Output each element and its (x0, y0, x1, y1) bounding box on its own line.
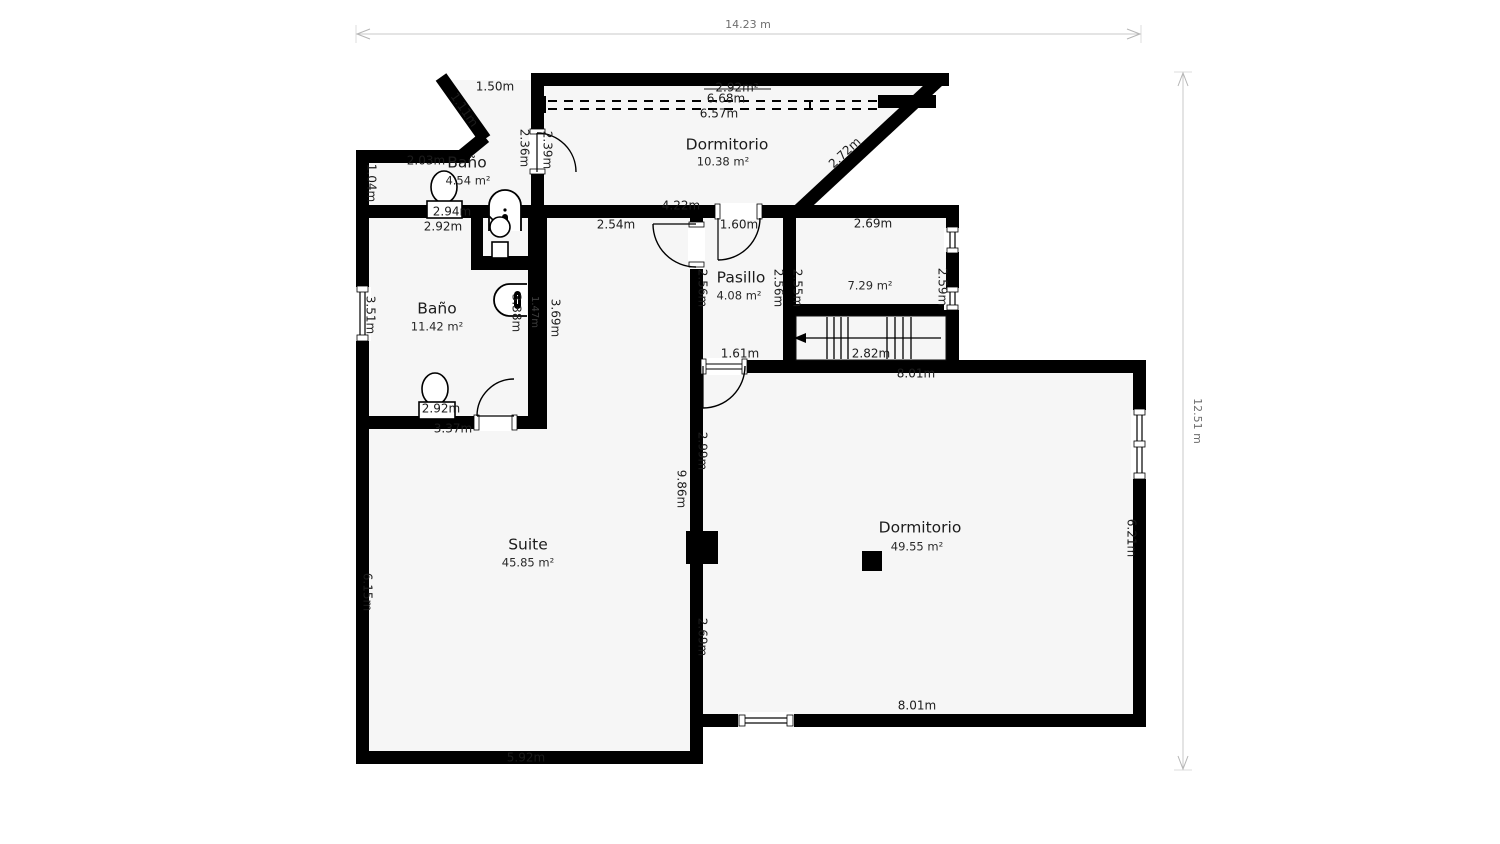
room-label-dormitorio-top: Dormitorio (686, 136, 769, 154)
measurement-label: 2.03m (407, 154, 445, 168)
measurement-label: 2.94m (433, 205, 471, 219)
measurement-label: 3.51m (364, 296, 378, 334)
dormitorio-pillar (862, 551, 882, 571)
room-label-pasillo: Pasillo (717, 269, 766, 287)
room-label-bano-main: Baño (417, 300, 456, 318)
measurement-label: 2.36m (518, 129, 532, 167)
measurement-label: 1.47m (529, 296, 540, 328)
measurement-label: 3.69m (549, 299, 563, 337)
measurement-label: 3.37m (434, 422, 472, 436)
measurement-label: 2.56m (772, 269, 786, 307)
measurement-label: 2.82m (852, 347, 890, 361)
room-area-pasillo: 4.08 m² (716, 289, 761, 303)
measurement-label: 5.92m (507, 751, 545, 765)
measurement-label: 2.59m (936, 268, 950, 306)
measurement-label: 2.69m (696, 618, 710, 656)
room-area-dormitorio-main: 49.55 m² (891, 540, 943, 554)
measurement-label: 6.57m (700, 107, 738, 121)
floor-plan: 14.23 m 12.51 m Dormitorio 10.38 m² Baño… (0, 0, 1500, 844)
room-area-suite: 45.85 m² (502, 556, 554, 570)
window-dormitorio-right (1131, 409, 1148, 479)
room-area-bano-main: 11.42 m² (411, 320, 463, 334)
room-label-suite: Suite (508, 536, 548, 554)
measurement-label: 2.55m (791, 269, 805, 307)
suite-wall-pillar (686, 531, 718, 564)
measurement-label: 1.60m (720, 218, 758, 232)
window-dormitorio-bottom (738, 712, 794, 729)
measurement-label: 2.39m (541, 131, 555, 169)
window-stairs-right-1 (944, 227, 961, 253)
measurement-label: 2.99m (696, 432, 710, 470)
overall-height-label: 12.51 m (1191, 398, 1204, 444)
measurement-label: 6.68m (707, 92, 745, 106)
room-area-stairs: 7.29 m² (847, 279, 892, 293)
measurement-label: 9.86m (675, 470, 689, 508)
measurement-label: 1.50m (476, 80, 514, 94)
room-area-dormitorio-top: 10.38 m² (697, 155, 749, 169)
floor-plan-page: 14.23 m 12.51 m Dormitorio 10.38 m² Baño… (0, 0, 1500, 844)
measurement-label: 1.61m (721, 347, 759, 361)
measurement-label: 2.92m (424, 220, 462, 234)
measurement-label: 4.22m (662, 199, 700, 213)
room-label-bano-top: Baño (447, 154, 486, 172)
measurement-label: 1.04m (365, 164, 379, 202)
room-area-bano-top: 4.54 m² (445, 174, 490, 188)
measurement-label: 2.92m (422, 402, 460, 416)
overall-width-label: 14.23 m (725, 18, 771, 31)
measurement-label: 2.54m (597, 218, 635, 232)
measurement-label: 3.38m (510, 294, 524, 332)
right-dimension (1174, 72, 1192, 770)
room-label-dormitorio-main: Dormitorio (879, 519, 962, 537)
measurement-label: 2.56m (696, 269, 710, 307)
measurement-label: 8.01m (897, 367, 935, 381)
measurement-label: 6.21m (1125, 519, 1139, 557)
measurement-label: 8.01m (898, 699, 936, 713)
measurement-label: 6.15m (361, 573, 375, 611)
measurement-label: 2.69m (854, 217, 892, 231)
